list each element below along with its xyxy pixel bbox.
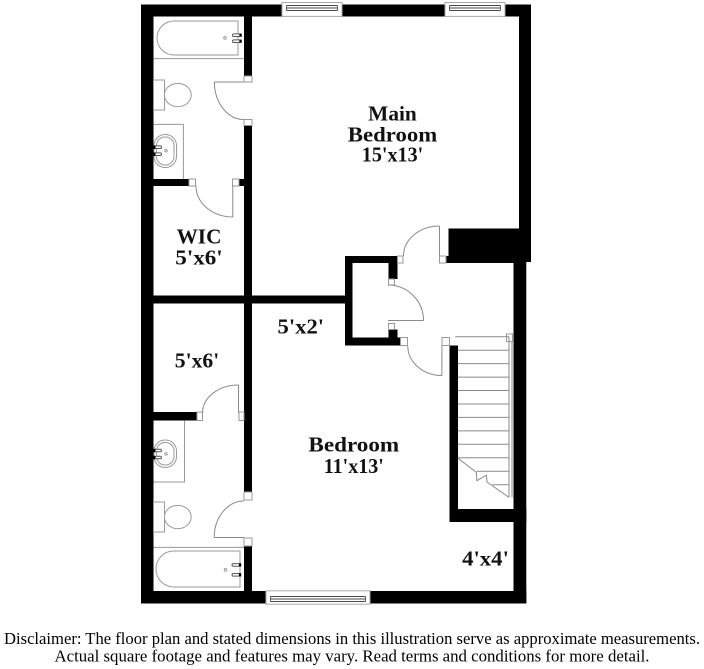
svg-text:11'x13': 11'x13' <box>324 454 384 478</box>
svg-text:15'x13': 15'x13' <box>362 143 423 167</box>
svg-text:5'x6': 5'x6' <box>175 246 222 270</box>
svg-text:Bedroom: Bedroom <box>308 433 399 457</box>
svg-text:Actual square footage and feat: Actual square footage and features may v… <box>55 647 650 666</box>
svg-text:Disclaimer: The floor plan and: Disclaimer: The floor plan and stated di… <box>4 629 700 648</box>
svg-text:4'x4': 4'x4' <box>462 547 509 571</box>
svg-text:5'x2': 5'x2' <box>278 315 325 339</box>
svg-text:5'x6': 5'x6' <box>175 349 219 373</box>
